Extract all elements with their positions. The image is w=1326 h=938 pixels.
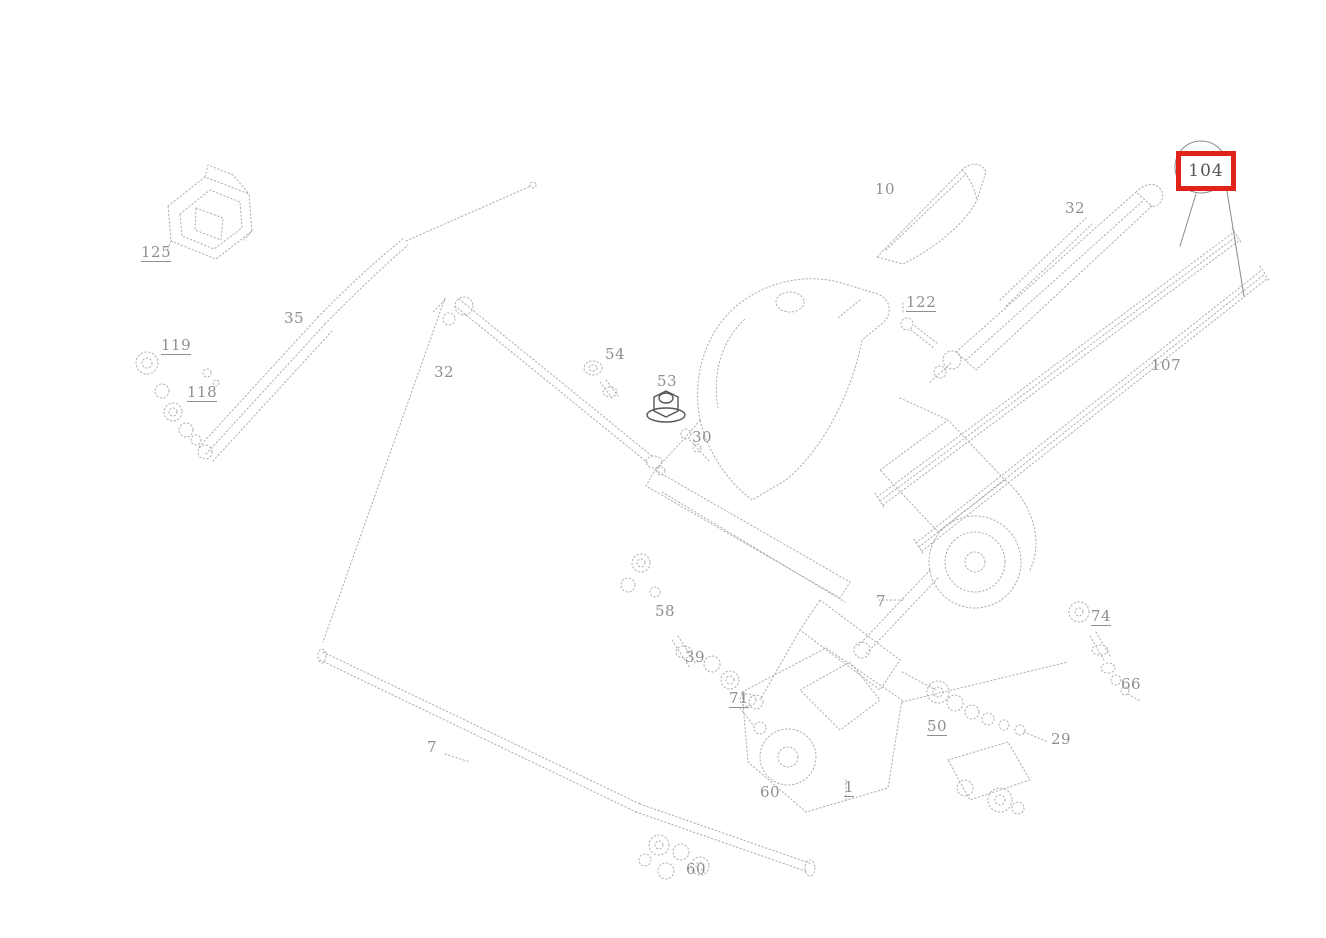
artwork-hex-nut	[647, 391, 685, 422]
artwork-arm-cover	[877, 164, 986, 264]
artwork-left-wiper-arm	[191, 182, 536, 461]
highlighted-part-callout[interactable]: 104	[1176, 151, 1236, 191]
highlighted-part-number: 104	[1188, 161, 1223, 181]
artwork-fastener-chain-right	[902, 662, 1068, 814]
artwork-right-wiper-arm	[930, 185, 1163, 383]
artwork-motor-assembly	[749, 398, 1036, 709]
artwork-bolt-stack-right	[1069, 602, 1140, 701]
artwork-center-arm-assembly	[646, 279, 889, 602]
artwork-wiper-blades	[875, 228, 1270, 555]
artwork-fastener-cluster-bottom	[639, 835, 709, 879]
artwork-bottom-rod	[318, 649, 815, 876]
diagram-artwork	[0, 0, 1326, 938]
artwork-fastener-cluster-center	[621, 554, 756, 726]
artwork-relay-module	[167, 165, 252, 259]
artwork-fasteners-left	[136, 352, 219, 437]
artwork-linkage-rail	[323, 297, 665, 642]
artwork-screw-122	[901, 301, 938, 348]
artwork-pivot-hardware	[584, 361, 710, 462]
artwork-console	[742, 648, 902, 812]
diagram-stage: 1251191183532545330101223210774667583971…	[0, 0, 1326, 938]
